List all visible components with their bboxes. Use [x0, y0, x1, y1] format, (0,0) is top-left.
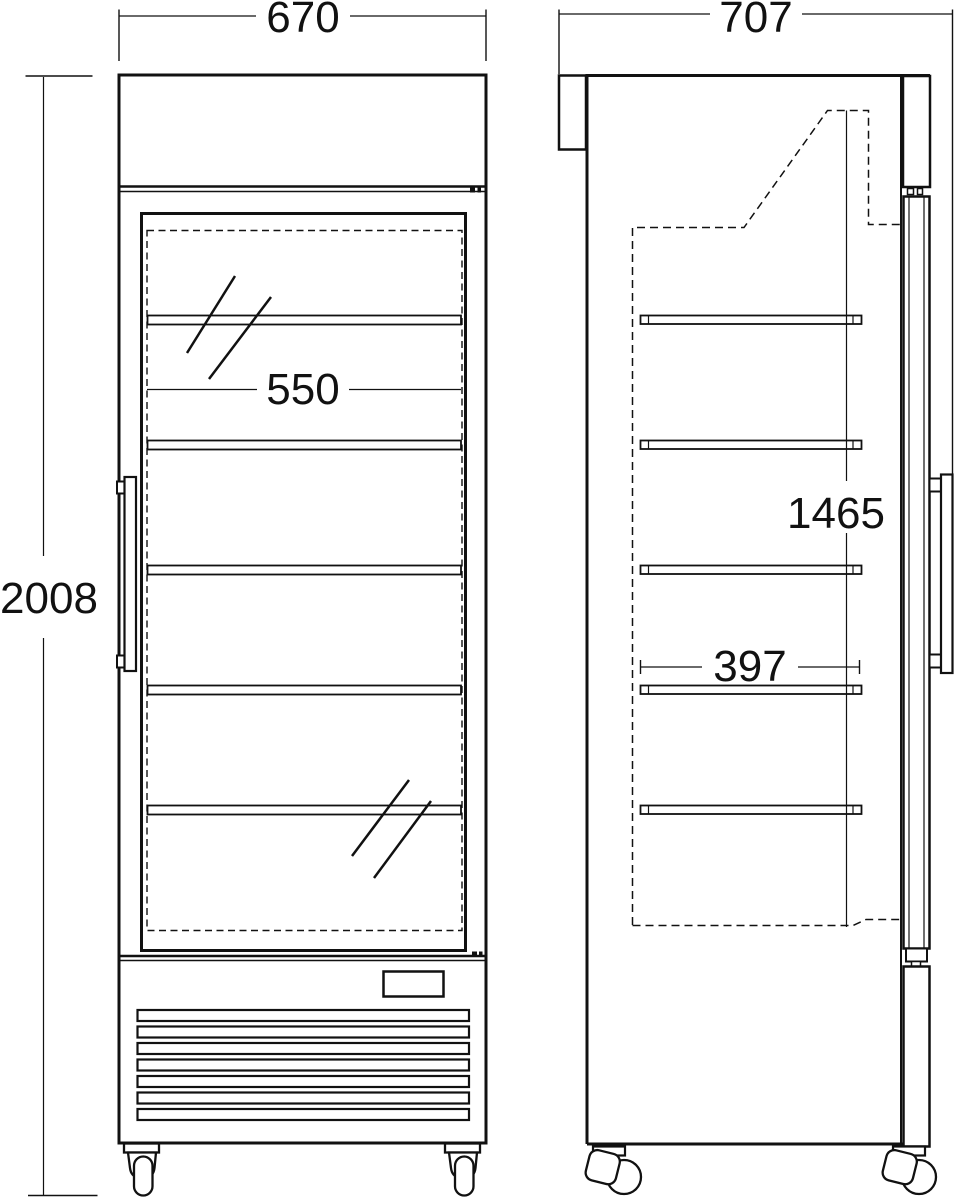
louver-slat: [138, 1027, 470, 1038]
shelf-line: [641, 441, 862, 450]
bottom-hinge-mark: [472, 952, 477, 957]
dimension-label-shelf-depth: 397: [713, 642, 786, 691]
shelf-line: [148, 441, 462, 450]
shelf-line: [148, 686, 462, 695]
caster-fork: [584, 1148, 622, 1186]
caster-wheel: [134, 1157, 153, 1196]
louver-slat: [138, 1109, 470, 1120]
caster-plate: [124, 1144, 159, 1153]
shelf-line: [641, 566, 862, 575]
caster-plate: [445, 1144, 480, 1153]
ventilation-grille: [138, 1010, 470, 1120]
top-hinge-mark: [470, 187, 475, 193]
door-handle-front: [125, 477, 137, 671]
lower-door-panel-side: [904, 967, 930, 1147]
door-handle-side: [941, 475, 953, 674]
top-hinge-side: [908, 189, 914, 195]
louver-slat: [138, 1060, 470, 1071]
refrigerator-dimension-drawing: 670 707 2008 550 1465 397: [0, 0, 955, 1200]
shelf-line: [148, 806, 462, 815]
rating-plate: [384, 972, 444, 997]
canopy-side: [903, 76, 930, 187]
shelf-line: [641, 316, 862, 325]
dimension-label-overall-depth: 707: [719, 0, 792, 42]
caster-wheel: [455, 1157, 474, 1196]
back-panel-protrusion: [559, 76, 586, 150]
bottom-hinge-mark: [479, 952, 483, 957]
door-bottom-cap-side: [906, 949, 927, 962]
louver-slat: [138, 1093, 470, 1104]
front-view: [117, 75, 486, 1196]
technical-drawing-page: 670 707 2008 550 1465 397: [0, 0, 955, 1200]
top-hinge-mark: [478, 187, 482, 193]
glass-door-side: [904, 197, 930, 949]
louver-slat: [138, 1010, 470, 1021]
handle-bracket: [930, 479, 942, 492]
dimension-label-interior-height: 1465: [787, 489, 885, 538]
top-hinge-side: [918, 189, 923, 195]
dimension-label-interior-width: 550: [266, 365, 339, 414]
louver-slat: [138, 1043, 470, 1054]
louver-slat: [138, 1076, 470, 1087]
caster-fork: [881, 1148, 919, 1186]
shelf-line: [641, 806, 862, 815]
shelf-line: [148, 316, 462, 325]
dimension-label-overall-width: 670: [266, 0, 339, 42]
handle-bracket: [930, 655, 942, 668]
dimension-label-overall-height: 2008: [0, 574, 98, 623]
shelf-line: [148, 566, 462, 575]
